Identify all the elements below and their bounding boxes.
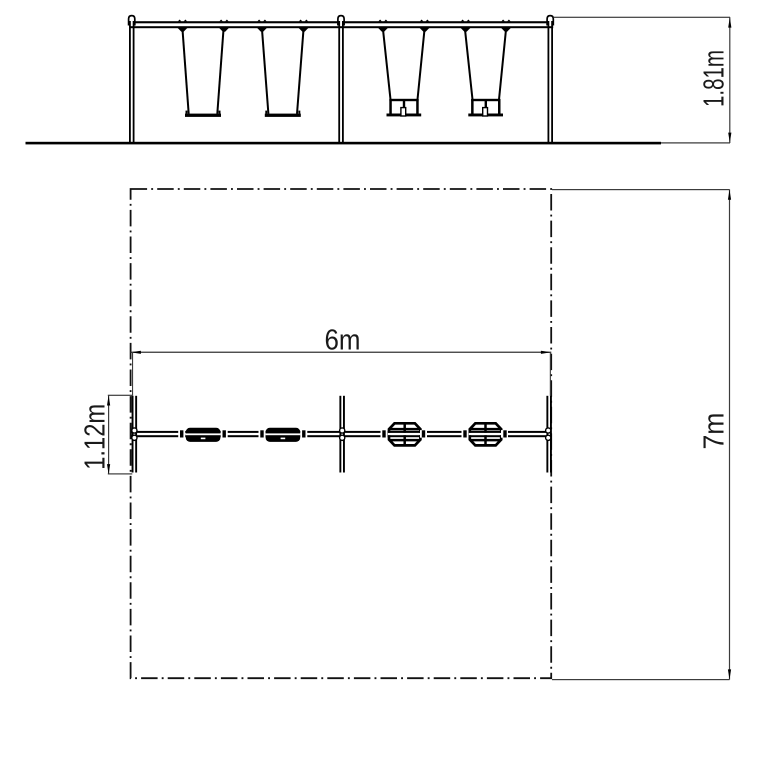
svg-text:1.81m: 1.81m	[699, 50, 731, 107]
svg-text:6m: 6m	[325, 325, 361, 357]
svg-text:7m: 7m	[699, 413, 731, 450]
svg-text:1.12m: 1.12m	[79, 404, 111, 470]
